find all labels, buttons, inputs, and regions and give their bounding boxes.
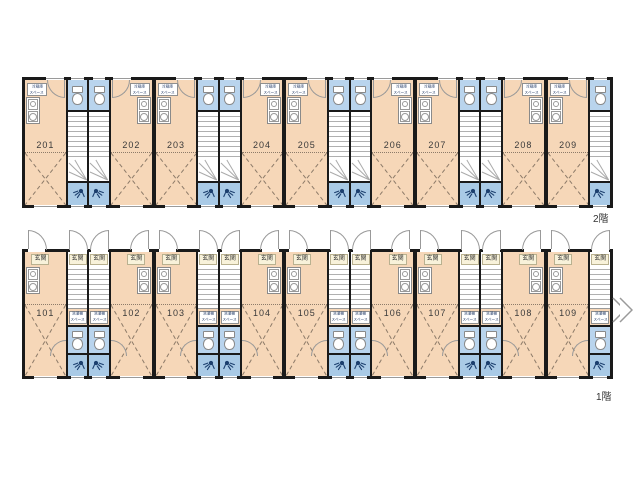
toilet-tank [355,331,366,338]
entrance-door-gap [70,249,87,252]
staircase [220,112,240,181]
room-number: 205 [286,140,327,150]
kitchen-unit-icon [529,97,543,124]
stair-bath-strip: 玄関 洗濯機 スペース [218,252,240,376]
fridge-space-label-line2: スペース [394,91,408,94]
window [201,205,215,208]
stove-icon [28,281,38,292]
washer-space-label-line1: 洗濯機 [94,312,105,315]
window [202,77,215,80]
room-number: 102 [111,308,152,318]
sink-icon [139,269,149,280]
entrance-door-gap [524,249,541,252]
window [594,77,607,80]
window [165,205,188,208]
entrance-label: 玄関 [127,254,145,265]
staircase: 玄関 [198,252,218,309]
fridge-space-label-line2: スペース [263,91,277,94]
loft-area [417,152,458,205]
staircase: 玄関 [220,252,240,309]
room-209: 冷蔵庫 スペース 209 [544,80,589,205]
entrance-door-gap [91,249,108,252]
door-arc-icon [243,80,261,98]
entrance-door-arc-icon [289,230,308,250]
staircase: 玄関 [329,252,349,309]
toilet-tank [224,331,235,338]
entrance-label: 玄関 [554,254,572,265]
window [223,376,237,379]
room-202: 冷蔵庫 スペース 202 [109,80,152,205]
shower-room [89,355,109,376]
entrance-door-arc-icon [591,230,610,250]
fridge-space-label-line2: スペース [525,91,539,94]
shower-room [89,181,109,205]
shower-room [460,355,480,376]
entrance-door-arc-icon [461,230,480,250]
door-arc-icon [504,80,522,98]
shower-room [198,355,218,376]
washer-space-label: 洗濯機 スペース [90,311,108,324]
toilet-icon [72,86,83,105]
entrance-door-gap [222,249,239,252]
shower-icon [70,187,86,201]
washer-space-label-line2: スペース [92,318,106,321]
toilet-bowl [486,338,497,350]
stair-winder [198,159,218,181]
kitchen-unit-icon [157,97,171,124]
staircase: 玄関 [460,252,480,309]
toilet-tank [355,86,366,93]
window [71,77,84,80]
entrance-door-gap [592,249,609,252]
fridge-space-label: 冷蔵庫 スペース [130,83,150,96]
entrance-label: 玄関 [162,254,180,265]
window [92,376,106,379]
kitchen-unit-icon [287,267,301,294]
toilet-bowl [94,338,105,350]
entrance-door-arc-icon [551,230,570,250]
staircase [198,112,218,181]
entrance-label: 玄関 [591,254,609,265]
kitchen-unit-icon [267,97,281,124]
stair-treads [481,265,501,308]
window [244,77,262,80]
sink-icon [400,99,410,110]
entrance-door-gap [483,249,500,252]
sink-icon [28,269,38,280]
shower-room [590,355,610,376]
kitchen-unit-icon [26,97,40,124]
stove-icon [269,111,279,122]
crossed-dash-lines [111,153,152,205]
fridge-space-label-line2: スペース [30,91,44,94]
door-arc-icon [47,80,65,98]
toilet-tank [486,331,497,338]
room-105: 玄関 105 [282,252,327,376]
kitchen-unit-icon [398,97,412,124]
toilet-icon [224,331,235,350]
toilet-bowl [333,93,344,105]
entrance-door-arc-icon [221,230,240,250]
loft-area [372,152,413,205]
entrance-door-arc-icon [330,230,349,250]
stair-bath-strip: 玄関 洗濯機 スペース [327,252,349,376]
room-number: 208 [503,140,544,150]
toilet-tank [333,86,344,93]
window [93,77,106,80]
fridge-space-label: 冷蔵庫 スペース [550,83,570,96]
shower-icon [91,187,107,201]
toilet-icon [355,331,366,350]
staircase: 玄関 [68,252,88,309]
window [354,77,367,80]
toilet-icon [203,331,214,350]
room-201: 冷蔵庫 スペース 201 [25,80,66,205]
stair-treads [329,265,349,308]
stair-winder [460,159,480,181]
fridge-space-label: 冷蔵庫 スペース [288,83,308,96]
entrance-label: 玄関 [293,254,311,265]
toilet-room [460,325,480,355]
sink-icon [420,99,430,110]
window [593,205,607,208]
room-number: 101 [25,308,66,318]
window [593,376,607,379]
washer-space-label-line2: スペース [463,318,477,321]
window [92,205,106,208]
toilet-room [89,80,109,112]
stair-bath-strip: 玄関 洗濯機 スペース [479,252,501,376]
door-arc-icon [569,80,587,98]
entrance-door-gap [353,249,370,252]
toilet-icon [224,86,235,105]
window [485,77,498,80]
room-number: 202 [111,140,152,150]
staircase [351,112,371,181]
shower-icon [331,359,347,373]
entrance-door-gap [462,249,479,252]
entrance-label: 玄関 [482,254,500,265]
crossed-dash-lines [503,153,544,205]
window [71,205,85,208]
washer-space-label: 洗濯機 スペース [591,311,609,324]
kitchen-unit-icon [267,267,281,294]
entrance-label: 玄関 [258,254,276,265]
stove-icon [551,111,561,122]
room-103: 玄関 103 [152,252,197,376]
loft-area [548,152,589,205]
door-arc-icon [439,80,457,98]
kitchen-unit-icon [26,267,40,294]
room-number: 107 [417,308,458,318]
fridge-space-label: 冷蔵庫 スペース [391,83,411,96]
window [426,205,449,208]
shower-icon [200,187,216,201]
window [426,376,449,379]
stove-icon [139,111,149,122]
sink-icon [159,269,169,280]
fridge-space-label-line2: スペース [553,91,567,94]
fridge-space-label-line1: 冷蔵庫 [32,85,43,88]
door-arc-icon [112,80,130,98]
floor-1-plan: 玄関 101 玄関 洗濯機 スペース [22,249,613,379]
washer-space-area: 洗濯機 スペース [481,309,501,325]
room-106: 玄関 106 [370,252,413,376]
sink-icon [269,99,279,110]
toilet-icon [333,86,344,105]
window [34,376,57,379]
fridge-space-label: 冷蔵庫 スペース [27,83,47,96]
crossed-dash-lines [372,153,413,205]
entrance-label: 玄関 [389,254,407,265]
toilet-room [68,325,88,355]
toilet-room [590,325,610,355]
entrance-label: 玄関 [199,254,217,265]
room-101: 玄関 101 [25,252,66,376]
fridge-space-label-line1: 冷蔵庫 [396,85,407,88]
room-number: 105 [286,308,327,318]
stove-icon [531,111,541,122]
window [354,205,368,208]
fridge-space-label-line2: スペース [422,91,436,94]
washer-space-label-line1: 洗濯機 [72,312,83,315]
loft-area [156,152,197,205]
fridge-space-label-line2: スペース [291,91,305,94]
toilet-tank [94,86,105,93]
toilet-icon [355,86,366,105]
kitchen-unit-icon [157,267,171,294]
toilet-icon [203,86,214,105]
loft-area [111,152,152,205]
stair-treads [89,265,109,308]
toilet-tank [94,331,105,338]
window [557,205,580,208]
crossed-dash-lines [25,153,66,205]
stair-treads [351,265,371,308]
room-208: 冷蔵庫 スペース 208 [501,80,544,205]
window [113,77,131,80]
loft-area [25,152,66,205]
staircase: 玄関 [481,252,501,309]
shower-icon [483,359,499,373]
crossed-dash-lines [156,153,197,205]
staircase: 玄関 [351,252,371,309]
stove-icon [289,111,299,122]
room-number: 109 [548,308,589,318]
window [381,205,404,208]
window [381,376,404,379]
room-number: 106 [372,308,413,318]
room-204: 冷蔵庫 スペース 204 [240,80,283,205]
fridge-space-label-line1: 冷蔵庫 [265,85,276,88]
room-109: 玄関 109 [544,252,589,376]
window [251,205,274,208]
window [295,205,318,208]
toilet-bowl [464,338,475,350]
shower-room [220,355,240,376]
toilet-bowl [72,338,83,350]
sink-icon [551,269,561,280]
stove-icon [159,281,169,292]
shower-room [68,355,88,376]
stair-winder [351,159,371,181]
shower-icon [91,359,107,373]
toilet-bowl [333,338,344,350]
shower-room [481,181,501,205]
shower-room [329,181,349,205]
toilet-tank [486,86,497,93]
entrance-label: 玄関 [69,254,87,265]
loft-area [286,152,327,205]
kitchen-unit-icon [549,267,563,294]
window [34,205,57,208]
fridge-space-label: 冷蔵庫 スペース [419,83,439,96]
staircase [89,112,109,181]
shower-icon [353,359,369,373]
toilet-icon [72,331,83,350]
sink-icon [400,269,410,280]
window [568,77,586,80]
stair-bath-strip: 玄関 洗濯機 スペース [458,252,480,376]
washer-space-label-line1: 洗濯機 [355,312,366,315]
sink-icon [420,269,430,280]
room-number: 104 [242,308,283,318]
entrance-door-arc-icon [159,230,178,250]
toilet-room [220,325,240,355]
fridge-space-label-line1: 冷蔵庫 [134,85,145,88]
stair-winder [590,159,610,181]
shower-room [68,181,88,205]
washer-space-label-line2: スペース [201,318,215,321]
sink-icon [28,99,38,110]
washer-space-label-line1: 洗濯機 [333,312,344,315]
window [332,376,346,379]
kitchen-unit-icon [137,267,151,294]
stair-bath-strip [458,80,480,205]
window [224,77,237,80]
stair-bath-strip [479,80,501,205]
floor-2-plan: 冷蔵庫 スペース 201 [22,77,613,208]
room-107: 玄関 107 [413,252,458,376]
toilet-tank [203,331,214,338]
shower-icon [331,187,347,201]
toilet-icon [94,331,105,350]
stove-icon [420,111,430,122]
entrance-label: 玄関 [221,254,239,265]
washer-space-area: 洗濯機 スペース [590,309,610,325]
entrance-door-arc-icon [28,230,47,250]
stair-bath-strip: 玄関 洗濯機 スペース [588,252,610,376]
shower-icon [353,187,369,201]
washer-space-label-line1: 洗濯機 [203,312,214,315]
toilet-room [481,80,501,112]
staircase [460,112,480,181]
washer-space-label-line1: 洗濯機 [464,312,475,315]
toilet-bowl [464,93,475,105]
stove-icon [159,111,169,122]
fridge-space-label-line2: スペース [133,91,147,94]
window [463,376,477,379]
toilet-tank [224,86,235,93]
stair-bath-strip: 玄関 洗濯機 スペース [87,252,109,376]
shower-room [220,181,240,205]
fridge-space-label: 冷蔵庫 スペース [522,83,542,96]
room-number: 206 [372,140,413,150]
staircase [329,112,349,181]
toilet-bowl [355,338,366,350]
fridge-space-label-line1: 冷蔵庫 [554,85,565,88]
washer-space-label: 洗濯機 スペース [221,311,239,324]
washer-space-label-line1: 洗濯機 [486,312,497,315]
fridge-space-label: 冷蔵庫 スペース [260,83,280,96]
fridge-space-label-line1: 冷蔵庫 [424,85,435,88]
window [46,77,64,80]
toilet-room [481,325,501,355]
washer-space-label-line2: スペース [593,318,607,321]
window [354,376,368,379]
shower-icon [222,187,238,201]
staircase: 玄関 [590,252,610,309]
window [333,77,346,80]
stove-icon [269,281,279,292]
toilet-room [89,325,109,355]
toilet-tank [203,86,214,93]
staircase [590,112,610,181]
entrance-label: 玄関 [519,254,537,265]
entrance-door-arc-icon [391,230,410,250]
entrance-label: 玄関 [461,254,479,265]
entrance-door-arc-icon [260,230,279,250]
toilet-tank [72,86,83,93]
stair-bath-strip [87,80,109,205]
washer-space-label-line2: スペース [353,318,367,321]
fridge-space-label-line1: 冷蔵庫 [293,85,304,88]
window [165,376,188,379]
stair-treads [460,265,480,308]
stair-treads [220,265,240,308]
staircase [481,112,501,181]
stove-icon [28,111,38,122]
floorplan-canvas: { "floor2": { "floor_label": "2階", "appl… [0,0,640,480]
washer-space-label-line2: スペース [70,318,84,321]
right-chevron-icon [611,295,633,325]
window [505,77,523,80]
sink-icon [289,269,299,280]
sink-icon [269,269,279,280]
toilet-room [351,80,371,112]
window [438,77,456,80]
stove-icon [400,111,410,122]
entrance-door-gap [551,249,568,252]
washer-space-label: 洗濯機 スペース [482,311,500,324]
shower-icon [483,187,499,201]
toilet-bowl [355,93,366,105]
entrance-label: 玄関 [352,254,370,265]
washer-space-area: 洗濯機 スペース [351,309,371,325]
washer-space-area: 洗濯機 スペース [329,309,349,325]
kitchen-unit-icon [287,97,301,124]
kitchen-unit-icon [529,267,543,294]
window [374,77,392,80]
toilet-room [198,325,218,355]
entrance-door-gap [132,249,149,252]
room-207: 冷蔵庫 スペース 207 [413,80,458,205]
stove-icon [420,281,430,292]
sink-icon [531,269,541,280]
toilet-tank [595,331,606,338]
window [201,376,215,379]
room-205: 冷蔵庫 スペース 205 [282,80,327,205]
